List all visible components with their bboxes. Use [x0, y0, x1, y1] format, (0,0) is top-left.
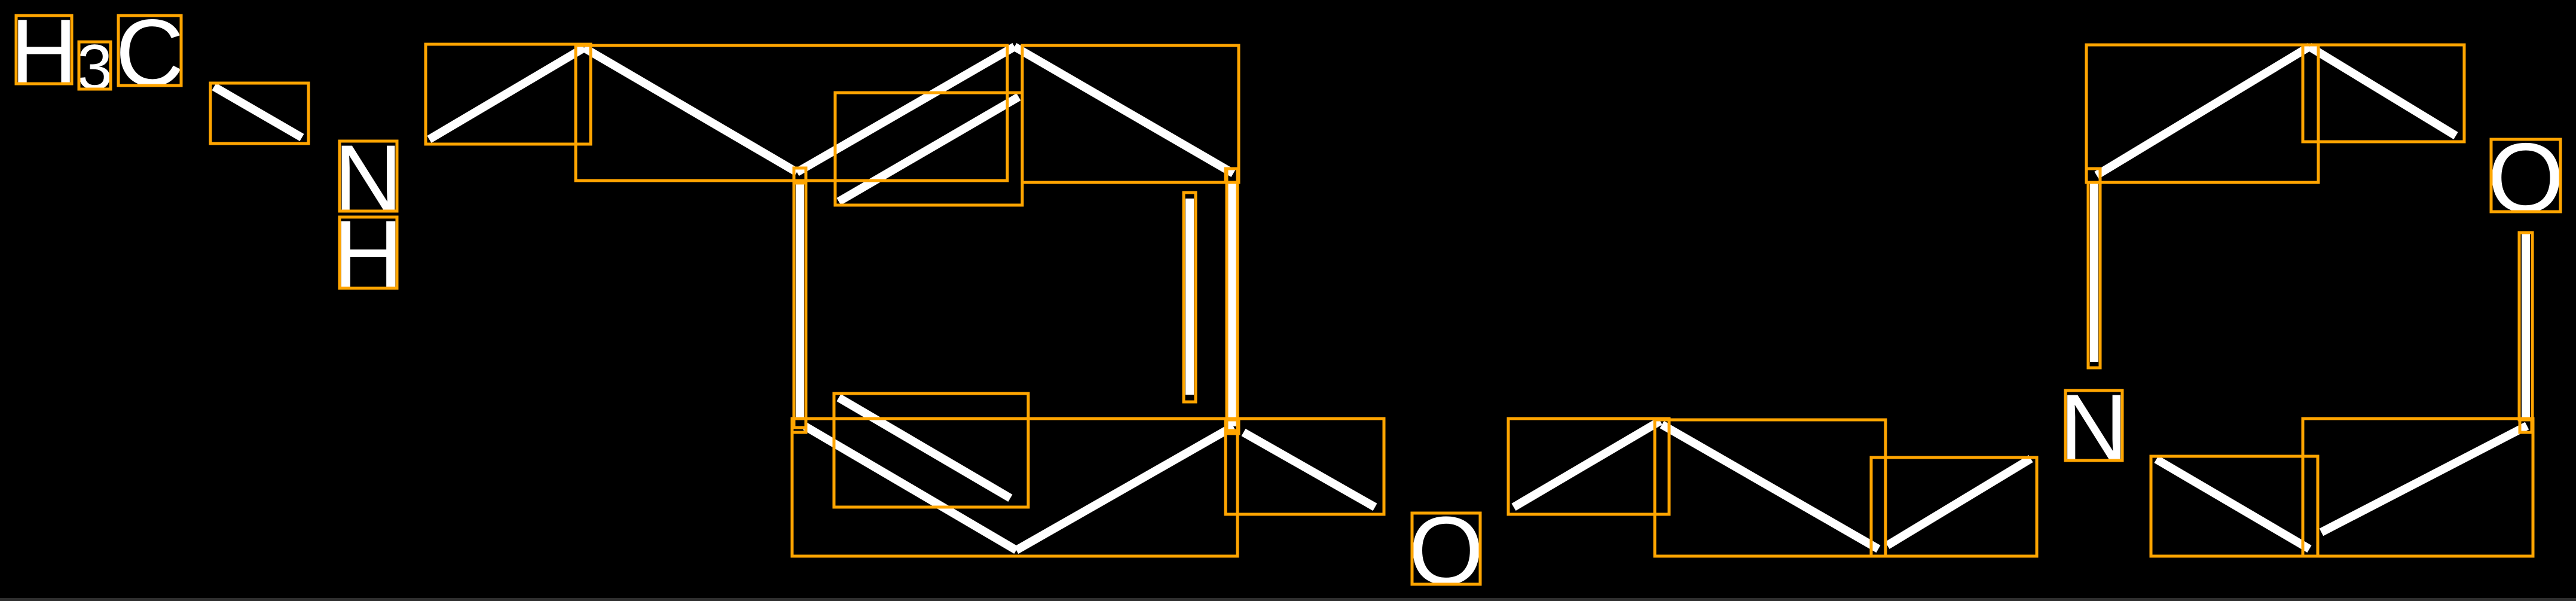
bottom-edge-artifact — [0, 598, 2576, 601]
molecule-image-stage: H3CNHONO — [0, 0, 2576, 601]
molecule-canvas: H3CNHONO — [0, 0, 2576, 601]
